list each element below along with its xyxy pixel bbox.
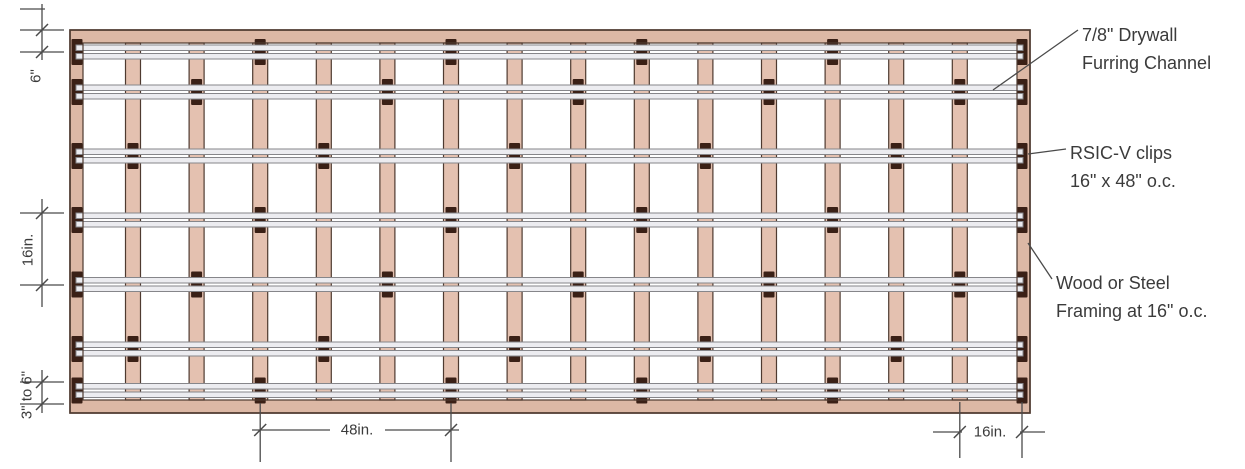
rsic-clip: [1017, 143, 1028, 169]
rsic-clip: [1017, 378, 1028, 404]
furring-channel-bar: [76, 286, 1023, 292]
framing-label-line2: Framing at 16" o.c.: [1056, 297, 1207, 325]
rsic-clip: [509, 336, 520, 362]
leader-line: [1028, 149, 1066, 154]
rsic-clips-label: RSIC-V clips 16" x 48" o.c.: [1070, 139, 1176, 195]
furring-channel-bar: [76, 342, 1023, 348]
rsic-clip: [764, 79, 775, 105]
furring-channel-bar: [76, 54, 1023, 60]
rsic-clip: [128, 336, 139, 362]
rsic-clip: [318, 336, 329, 362]
rsic-clip: [128, 143, 139, 169]
dim-label-3to6in-bottom: 3" to 6": [19, 369, 36, 421]
dim-label-16in-left: 16in.: [20, 232, 37, 269]
rsic-clip: [255, 207, 266, 233]
furring-channel-label-line2: Furring Channel: [1082, 49, 1211, 77]
rsic-clips-label-line2: 16" x 48" o.c.: [1070, 167, 1176, 195]
rsic-clip: [827, 207, 838, 233]
framing-label-line1: Wood or Steel: [1056, 269, 1207, 297]
furring-channel-bar: [76, 94, 1023, 100]
furring-channel-bar: [76, 45, 1023, 51]
rsic-clip: [573, 79, 584, 105]
rsic-clip: [382, 79, 393, 105]
rsic-clip: [1017, 272, 1028, 298]
rsic-clip: [509, 143, 520, 169]
rsic-clip: [891, 143, 902, 169]
rsic-clip: [191, 272, 202, 298]
rsic-clip: [72, 207, 83, 233]
dim-label-6in-top: 6": [28, 67, 45, 85]
dim-label-48in: 48in.: [339, 422, 376, 439]
rsic-clip: [191, 79, 202, 105]
rsic-clip: [382, 272, 393, 298]
furring-channel-label: 7/8" Drywall Furring Channel: [1082, 21, 1211, 77]
rsic-clip: [891, 336, 902, 362]
rsic-clip: [72, 272, 83, 298]
rsic-clip: [636, 207, 647, 233]
framing-label: Wood or Steel Framing at 16" o.c.: [1056, 269, 1207, 325]
rsic-clip: [1017, 336, 1028, 362]
rsic-clip: [446, 207, 457, 233]
rsic-clip: [1017, 207, 1028, 233]
furring-channel-bar: [76, 278, 1023, 284]
rsic-clip: [700, 143, 711, 169]
dim-label-16in-bottom: 16in.: [972, 424, 1009, 441]
furring-channel-bar: [76, 149, 1023, 155]
furring-channel-label-line1: 7/8" Drywall: [1082, 21, 1211, 49]
rsic-clip: [954, 79, 965, 105]
diagram-stage: 7/8" Drywall Furring Channel RSIC-V clip…: [0, 0, 1245, 469]
rsic-clip: [1017, 39, 1028, 65]
leader-line: [1028, 243, 1052, 279]
furring-channel-bar: [76, 158, 1023, 164]
rsic-clip: [318, 143, 329, 169]
framing-diagram-svg: [0, 0, 1245, 469]
rsic-clip: [700, 336, 711, 362]
rsic-clip: [954, 272, 965, 298]
rsic-clip: [1017, 79, 1028, 105]
rsic-clip: [72, 143, 83, 169]
rsic-clip: [72, 79, 83, 105]
furring-channel-bar: [76, 222, 1023, 228]
furring-channel-bar: [76, 351, 1023, 357]
rsic-clip: [72, 39, 83, 65]
rsic-clip: [573, 272, 584, 298]
rsic-clip: [72, 336, 83, 362]
furring-channel-bar: [76, 384, 1023, 390]
rsic-clip: [764, 272, 775, 298]
rsic-clip: [72, 378, 83, 404]
furring-channel-bar: [76, 85, 1023, 91]
rsic-clips-label-line1: RSIC-V clips: [1070, 139, 1176, 167]
furring-channel-bar: [76, 392, 1023, 398]
furring-channel-bar: [76, 213, 1023, 219]
